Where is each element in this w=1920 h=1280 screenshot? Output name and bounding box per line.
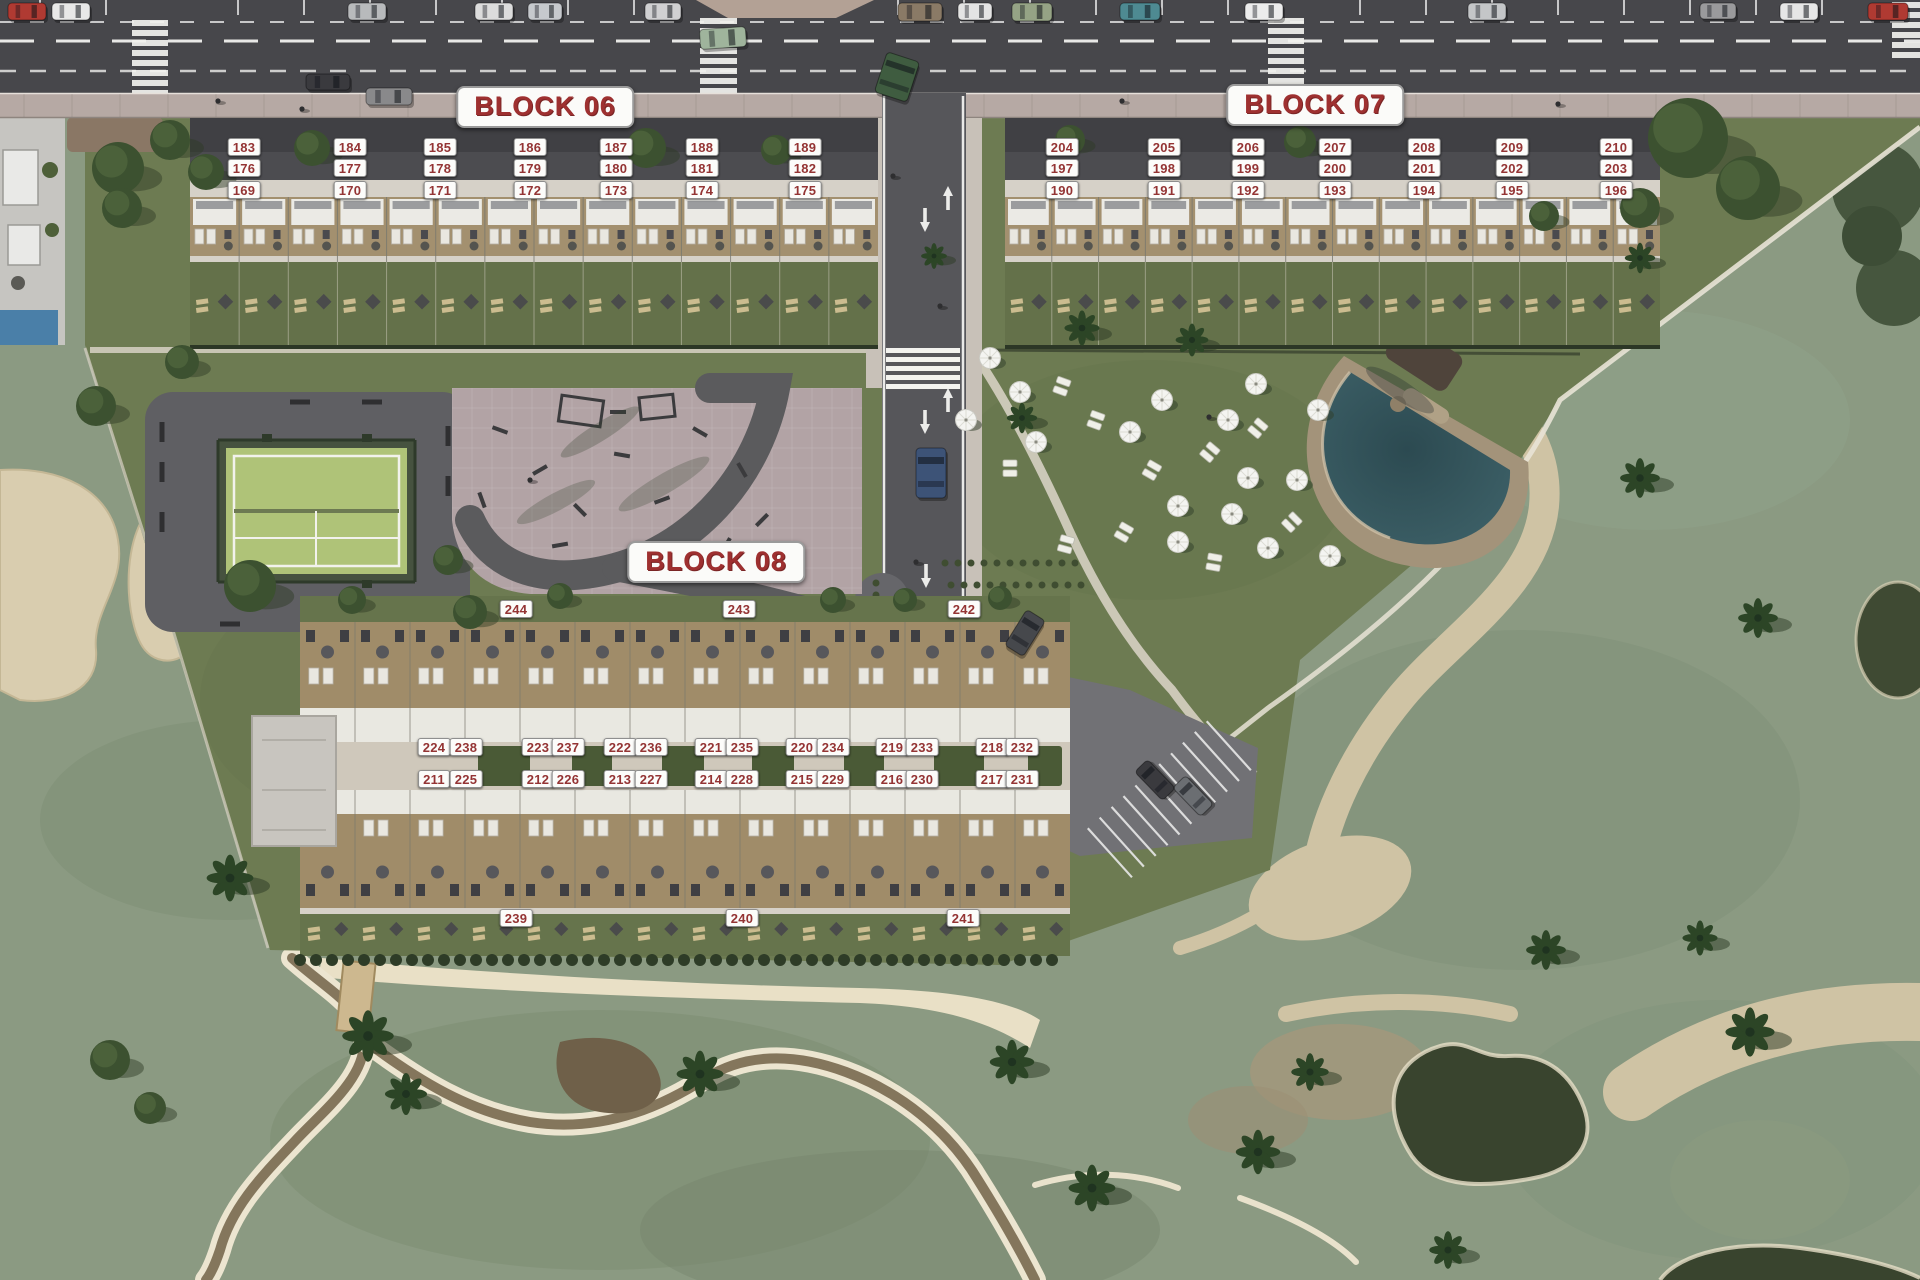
unit-label-173[interactable]: 173 [600,181,633,199]
unit-label-169[interactable]: 169 [228,181,261,199]
unit-label-216[interactable]: 216 [876,770,909,788]
unit-label-224[interactable]: 224 [418,738,451,756]
unit-label-236[interactable]: 236 [635,738,668,756]
unit-label-218[interactable]: 218 [976,738,1009,756]
unit-label-232[interactable]: 232 [1006,738,1039,756]
unit-label-230[interactable]: 230 [906,770,939,788]
unit-label-237[interactable]: 237 [552,738,585,756]
unit-label-170[interactable]: 170 [334,181,367,199]
unit-label-183[interactable]: 183 [228,138,261,156]
unit-label-235[interactable]: 235 [726,738,759,756]
unit-label-233[interactable]: 233 [906,738,939,756]
unit-label-179[interactable]: 179 [514,159,547,177]
unit-label-180[interactable]: 180 [600,159,633,177]
unit-label-174[interactable]: 174 [686,181,719,199]
unit-label-197[interactable]: 197 [1046,159,1079,177]
unit-label-226[interactable]: 226 [552,770,585,788]
unit-label-234[interactable]: 234 [817,738,850,756]
unit-label-239[interactable]: 239 [500,909,533,927]
block-title-block-08[interactable]: BLOCK 08 [627,541,805,583]
unit-label-175[interactable]: 175 [789,181,822,199]
unit-label-196[interactable]: 196 [1600,181,1633,199]
unit-label-205[interactable]: 205 [1148,138,1181,156]
unit-label-178[interactable]: 178 [424,159,457,177]
unit-label-242[interactable]: 242 [948,600,981,618]
unit-label-213[interactable]: 213 [604,770,637,788]
unit-label-193[interactable]: 193 [1319,181,1352,199]
unit-label-217[interactable]: 217 [976,770,1009,788]
unit-label-243[interactable]: 243 [723,600,756,618]
unit-label-221[interactable]: 221 [695,738,728,756]
unit-label-220[interactable]: 220 [786,738,819,756]
block-title-block-06[interactable]: BLOCK 06 [456,86,634,128]
unit-label-228[interactable]: 228 [726,770,759,788]
unit-label-192[interactable]: 192 [1232,181,1265,199]
unit-label-215[interactable]: 215 [786,770,819,788]
unit-labels-layer: 1831841851861871881891761771781791801811… [0,0,1920,1280]
unit-label-172[interactable]: 172 [514,181,547,199]
unit-label-181[interactable]: 181 [686,159,719,177]
unit-label-202[interactable]: 202 [1496,159,1529,177]
unit-label-187[interactable]: 187 [600,138,633,156]
unit-label-214[interactable]: 214 [695,770,728,788]
unit-label-212[interactable]: 212 [522,770,555,788]
unit-label-206[interactable]: 206 [1232,138,1265,156]
unit-label-225[interactable]: 225 [450,770,483,788]
unit-label-188[interactable]: 188 [686,138,719,156]
unit-label-210[interactable]: 210 [1600,138,1633,156]
unit-label-184[interactable]: 184 [334,138,367,156]
unit-label-194[interactable]: 194 [1408,181,1441,199]
unit-label-209[interactable]: 209 [1496,138,1529,156]
unit-label-177[interactable]: 177 [334,159,367,177]
unit-label-182[interactable]: 182 [789,159,822,177]
unit-label-198[interactable]: 198 [1148,159,1181,177]
unit-label-204[interactable]: 204 [1046,138,1079,156]
unit-label-222[interactable]: 222 [604,738,637,756]
unit-label-186[interactable]: 186 [514,138,547,156]
unit-label-207[interactable]: 207 [1319,138,1352,156]
unit-label-229[interactable]: 229 [817,770,850,788]
unit-label-190[interactable]: 190 [1046,181,1079,199]
unit-label-238[interactable]: 238 [450,738,483,756]
unit-label-227[interactable]: 227 [635,770,668,788]
block-title-block-07[interactable]: BLOCK 07 [1226,84,1404,126]
unit-label-199[interactable]: 199 [1232,159,1265,177]
unit-label-244[interactable]: 244 [500,600,533,618]
unit-label-195[interactable]: 195 [1496,181,1529,199]
unit-label-240[interactable]: 240 [726,909,759,927]
unit-label-208[interactable]: 208 [1408,138,1441,156]
unit-label-200[interactable]: 200 [1319,159,1352,177]
unit-label-231[interactable]: 231 [1006,770,1039,788]
unit-label-171[interactable]: 171 [424,181,457,199]
unit-label-241[interactable]: 241 [947,909,980,927]
unit-label-201[interactable]: 201 [1408,159,1441,177]
unit-label-203[interactable]: 203 [1600,159,1633,177]
unit-label-176[interactable]: 176 [228,159,261,177]
siteplan-stage: 1831841851861871881891761771781791801811… [0,0,1920,1280]
unit-label-219[interactable]: 219 [876,738,909,756]
unit-label-223[interactable]: 223 [522,738,555,756]
unit-label-189[interactable]: 189 [789,138,822,156]
unit-label-211[interactable]: 211 [418,770,450,788]
unit-label-191[interactable]: 191 [1148,181,1181,199]
unit-label-185[interactable]: 185 [424,138,457,156]
